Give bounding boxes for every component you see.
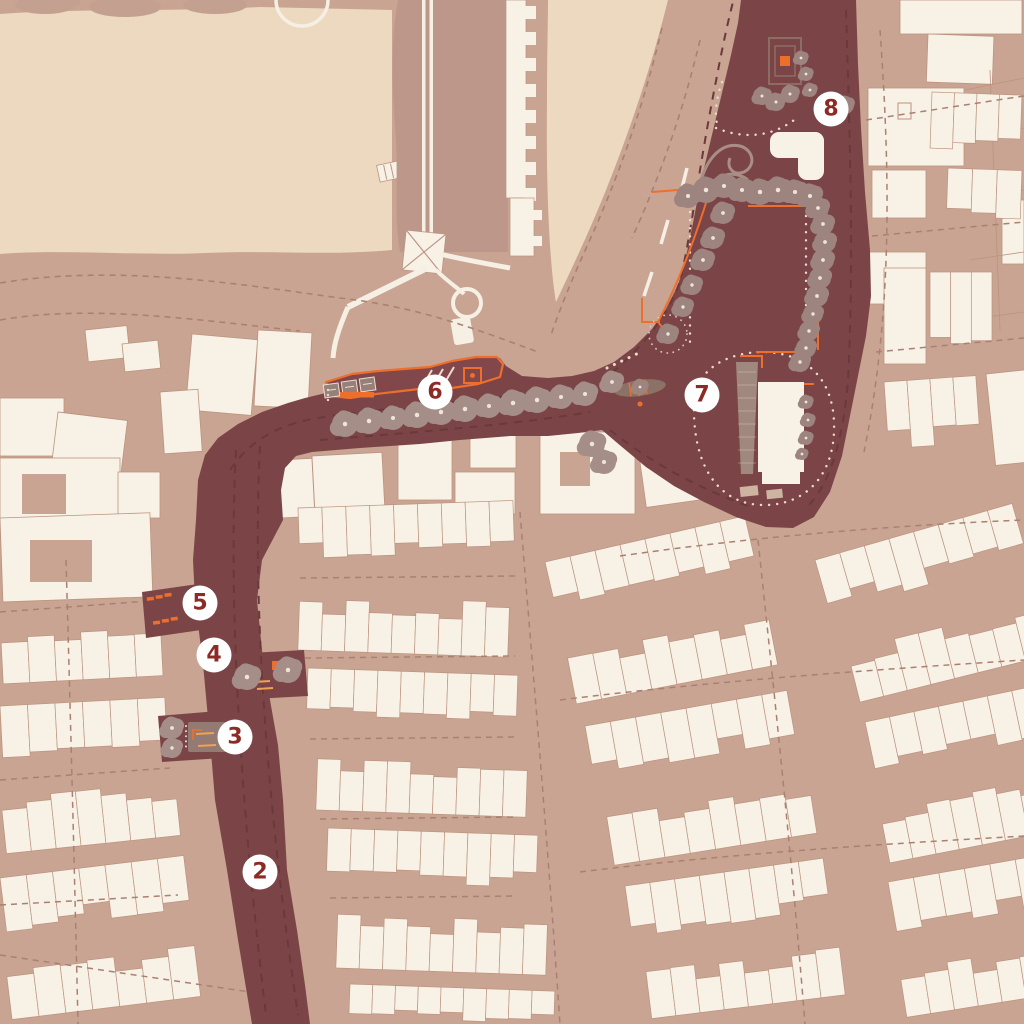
building [872,170,926,218]
marker-number: 8 [823,98,838,120]
building-lot [353,670,378,713]
battlement [524,110,536,123]
marker-number: 5 [192,592,207,614]
trunk-dot [758,190,762,194]
building-lot [391,615,416,654]
trunk-dot [808,194,812,198]
building-lot [513,835,538,873]
building-lot [414,613,439,655]
building-lot [456,768,481,816]
trunk-dot [439,410,443,414]
trunk-dot [721,211,725,215]
marker-number: 6 [427,381,442,403]
path-line [422,0,426,236]
trunk-dot [774,100,777,103]
building-lot [470,674,495,713]
trunk-dot [681,305,684,308]
building-lot [1,642,30,684]
building-lot [744,970,772,1007]
building-lot [947,168,973,209]
building-lot [108,635,137,679]
building-lot [110,699,140,748]
building-lot [930,377,956,426]
trunk-dot [793,190,797,194]
trunk-dot [686,194,690,198]
building-lot [359,926,384,970]
green-west [0,7,392,254]
map-marker-2[interactable]: 2 [243,855,278,890]
building-lot [397,830,422,870]
building [122,340,161,372]
building-lot [316,759,341,811]
building-block [160,389,202,453]
building-lot [326,828,351,872]
trunk-dot [804,346,807,349]
map-marker-5[interactable]: 5 [183,586,218,621]
battlement [524,162,536,175]
building-lot [499,927,524,974]
building-lot [489,500,514,541]
accent-dash [162,619,169,623]
building [900,0,1022,34]
building-lot [423,672,448,715]
building-lot [87,957,120,1010]
trunk-dot [583,392,587,396]
trunk-dot [602,460,606,464]
building-lot [930,92,954,149]
trunk-dot [823,240,827,244]
path-line [430,0,434,236]
building [160,389,202,453]
building-lot [400,671,425,713]
accent-dash [147,597,154,601]
building-lot [719,961,749,1010]
building-block [122,340,161,372]
yellow-dash [196,733,214,734]
battlement [532,210,542,220]
trunk-dot [800,57,803,60]
building-lot [330,669,355,708]
building-lot [417,503,442,548]
trunk-dot [559,395,563,399]
building-lot [27,703,57,752]
battlement [524,58,536,71]
trunk-dot [821,258,825,262]
building-block [926,34,994,84]
battlement [532,236,542,246]
map-marker-8[interactable]: 8 [814,92,849,127]
trunk-dot [415,413,419,417]
trunk-dot [487,404,491,408]
trunk-dot [815,294,819,298]
accent-dash [164,593,171,597]
trunk-dot [776,188,780,192]
building-lot [2,808,31,854]
building-lot [508,990,532,1020]
marker-number: 2 [252,861,267,883]
building-block [900,0,1022,34]
accent-bar [340,392,374,398]
trunk-dot [722,184,726,188]
trunk-dot [463,407,467,411]
building-lot [81,631,110,680]
map-marker-4[interactable]: 4 [197,638,232,673]
building-lot [465,501,490,547]
building-lot [998,94,1022,139]
pavilion-building [798,132,824,180]
building-lot [479,769,504,816]
battlement [524,6,536,19]
battlement [524,32,536,45]
trunk-dot [590,442,594,446]
building [118,472,160,518]
building-block [884,268,926,364]
building-lot [368,613,393,654]
building-lot [393,504,418,544]
accent-dash [153,621,160,625]
castle-wall [506,0,526,198]
courtyard [560,452,590,486]
marker-number: 7 [694,384,709,406]
trunk-dot [811,312,814,315]
trunk-dot [343,422,347,426]
building-lot [420,831,445,876]
pad [766,489,783,500]
building-lot [975,94,999,142]
yellow-dash [198,745,216,746]
map-marker-3[interactable]: 3 [218,720,253,755]
dot [327,399,329,401]
building-lot [82,700,112,747]
building-lot [395,986,419,1011]
building-lot [27,635,56,682]
accent-dot [470,373,475,378]
trunk-dot [760,94,763,97]
building-lot [951,272,972,344]
building-lot [429,934,454,972]
trunk-dot [701,258,705,262]
building-lot [372,985,396,1015]
trunk-dot [690,283,693,286]
building-lot [798,858,828,897]
building-lot [307,668,332,709]
building-lot [768,966,796,1003]
building-lot [486,989,510,1019]
building-lot [452,918,477,972]
trunk-dot [788,92,791,95]
pad [740,485,759,497]
building-block [254,330,312,409]
building-lot [440,987,464,1013]
monument-core [780,56,790,66]
building-lot [406,926,431,971]
trunk-dot [805,401,808,404]
marker-number: 3 [227,726,242,748]
building-lot [996,170,1022,219]
trunk-dot [610,380,614,384]
trunk-dot [818,276,822,280]
trunk-dot [535,398,539,402]
building-lot [373,830,398,873]
trunk-dot [816,206,820,210]
building-lot [502,770,527,817]
building-lot [443,832,468,877]
trunk-dot [801,453,804,456]
building-lot [417,986,441,1014]
building-block [872,170,926,218]
building-lot [971,169,997,214]
map-marker-7[interactable]: 7 [685,378,720,413]
trunk-dot [245,675,249,679]
trunk-dot [805,437,808,440]
trunk-dot [807,329,810,332]
pavilion [323,383,340,398]
building-lot [382,918,407,970]
site-plan-svg [0,0,1024,1024]
building [926,34,994,84]
courtyard [22,474,66,514]
marker-number: 4 [206,644,221,666]
masterplan-map: 2 3 4 5 6 7 8 [0,0,1024,1024]
building-lot [531,990,555,1015]
yellow-dash [257,688,273,689]
church-step [762,472,800,484]
building-lot [344,601,369,653]
building-lot [971,272,992,341]
building-lot [786,796,817,838]
building-lot [376,670,401,717]
building-lot [370,505,396,556]
building-lot [884,380,910,431]
building-lot [466,833,491,886]
building-block [118,472,160,518]
trunk-dot [807,419,810,422]
dot [327,394,329,396]
building-lot [336,914,361,969]
building-lot [953,376,979,426]
trunk-dot [170,726,174,730]
accent-dot [638,402,643,407]
map-marker-6[interactable]: 6 [418,375,453,410]
trunk-dot [170,746,173,749]
building-lot [696,976,724,1013]
building [254,330,312,409]
building-lot [134,633,163,677]
building-lot [362,760,387,812]
trunk-dot [511,401,515,405]
trunk-dot [711,236,715,240]
trunk-dot [639,386,642,389]
trunk-dot [805,73,808,76]
building-lot [930,272,951,337]
building-lot [484,607,509,657]
trunk-dot [286,668,290,672]
building-lot [298,601,323,650]
castle-wall [510,198,534,256]
building-lot [386,761,411,813]
trunk-dot [821,222,825,226]
building-lot [522,924,547,975]
building-lot [441,502,466,544]
building-lot [350,829,375,871]
building-lot [461,601,486,657]
building-lot [438,618,463,655]
trunk-dot [798,360,801,363]
building-lot [476,932,501,974]
building [884,268,926,364]
building-lot [446,673,471,719]
castle-mound [393,0,509,252]
building-lot [0,705,30,758]
trunk-dot [666,332,669,335]
building-lot [321,614,346,652]
building [312,452,385,512]
building-lot [157,855,189,903]
building-lot [493,675,518,717]
trunk-dot [740,188,744,192]
battlement [524,84,536,97]
courtyard [30,540,92,582]
building-lot [339,771,364,812]
building-lot [7,973,39,1019]
trunk-dot [391,416,395,420]
building-block [312,452,385,512]
building-lot [490,834,515,878]
trunk-dot [367,419,371,423]
building-lot [298,507,323,543]
building-lot [432,777,457,815]
pavilion [359,377,376,392]
building-lot [953,93,977,144]
trunk-dot [704,188,708,192]
battlement [524,136,536,149]
building-lot [127,797,156,840]
building-lot [409,774,434,814]
building-lot [349,984,373,1014]
building-lot [152,799,181,838]
trunk-dot [809,89,812,92]
accent-dash [155,595,162,599]
building-lot [322,506,348,557]
dot [327,389,329,391]
terrace-row [930,272,992,344]
accent-dash [171,617,178,621]
building-lot [167,946,200,1000]
building-lot [463,988,487,1022]
building-lot [346,505,372,555]
